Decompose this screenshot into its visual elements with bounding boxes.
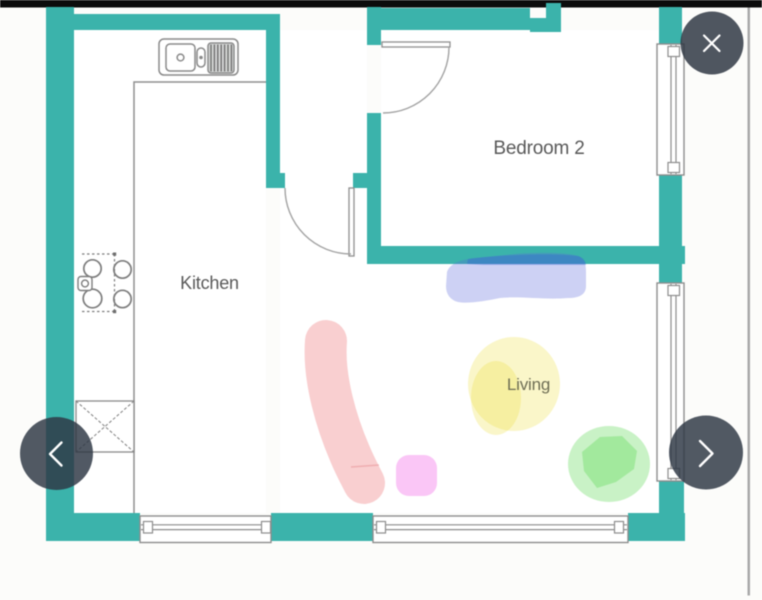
svg-text:Bedroom 2: Bedroom 2 [493, 138, 584, 159]
svg-text:Living: Living [507, 375, 550, 394]
svg-text:Kitchen: Kitchen [180, 273, 239, 293]
